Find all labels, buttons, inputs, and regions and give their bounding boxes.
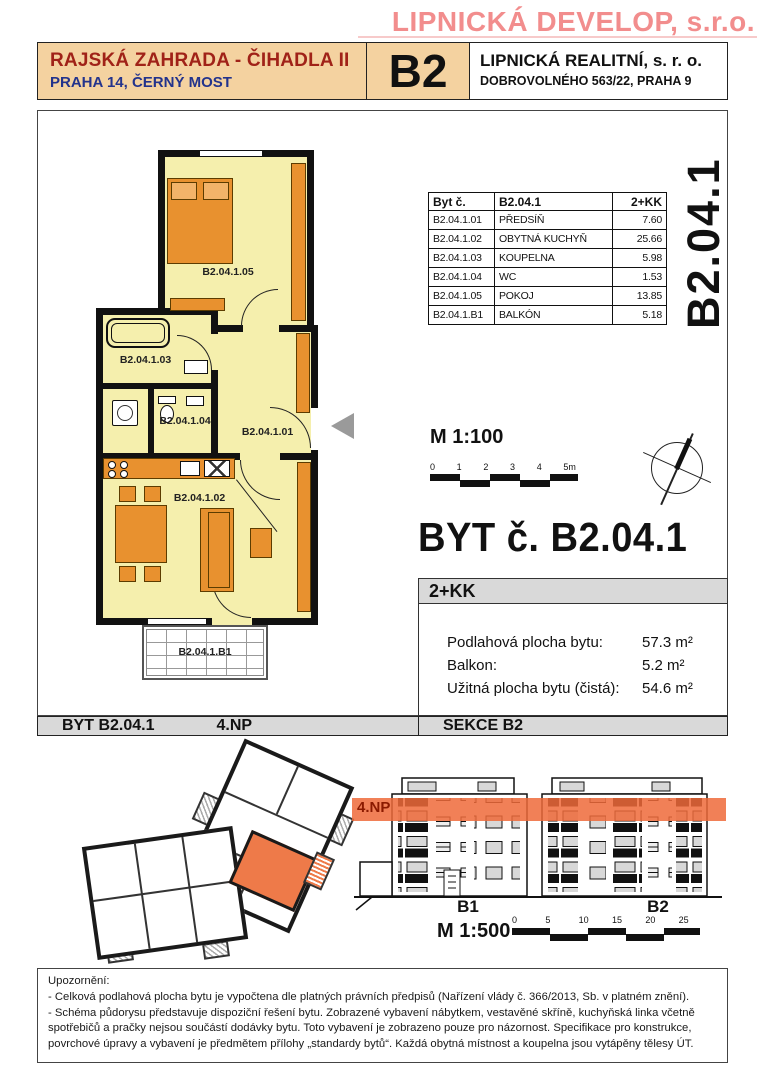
section-code: B2 (389, 44, 448, 98)
plan-window-bedroom (200, 150, 262, 157)
agency-name: LIPNICKÁ REALITNÍ, s. r. o. (480, 51, 727, 71)
plan-wall-unit (297, 462, 311, 612)
plan-chair (144, 566, 161, 582)
project-title: RAJSKÁ ZAHRADA - ČIHADLA II (50, 50, 366, 72)
room-name: KOUPELNA (495, 249, 613, 268)
plan-scale-bar: 012345m (430, 462, 590, 488)
info-value: 54.6 m² (642, 680, 693, 697)
room-area: 1.53 (613, 268, 667, 287)
plan-burner (108, 470, 116, 478)
room-label-bath: B2.04.1.03 (103, 354, 188, 366)
info-label: Podlahová plocha bytu: (447, 634, 642, 651)
building-label-b1: B1 (448, 897, 488, 917)
notice-line: - Schéma půdorysu představuje dispoziční… (48, 1006, 717, 1053)
info-value: 5.2 m² (642, 657, 685, 674)
footer-section-bar: SEKCE B2 (418, 716, 728, 736)
room-label-living: B2.04.1.02 (152, 492, 247, 504)
room-name: WC (495, 268, 613, 287)
room-code: B2.04.1.B1 (429, 306, 495, 325)
plan-kitchen-cabinet (180, 461, 200, 476)
tick: 5m (563, 462, 590, 472)
footer-unit-bar: BYT B2.04.1 4.NP (37, 716, 419, 736)
room-table-header: Byt č. B2.04.1 2+KK (429, 193, 667, 211)
building-label-b2: B2 (638, 897, 678, 917)
elevation-scale-label: M 1:500 (437, 920, 510, 943)
room-area: 7.60 (613, 211, 667, 230)
room-code: B2.04.1.05 (429, 287, 495, 306)
footer-floor: 4.NP (216, 717, 252, 735)
footer-unit: BYT B2.04.1 (62, 717, 154, 735)
info-value: 57.3 m² (642, 634, 693, 651)
col-id: B2.04.1 (495, 193, 613, 211)
table-row: B2.04.1.01 PŘEDSÍŇ 7.60 (429, 211, 667, 230)
room-area: 5.18 (613, 306, 667, 325)
plan-burner (108, 461, 116, 469)
plan-burner (120, 461, 128, 469)
floorplan-sheet: LIPNICKÁ DEVELOP, s.r.o. RAJSKÁ ZAHRADA … (0, 0, 763, 1080)
plan-scale-label: M 1:100 (430, 426, 503, 449)
plan-chair (119, 566, 136, 582)
room-area: 25.66 (613, 230, 667, 249)
section-header-box: B2 (366, 42, 470, 100)
plan-sofa-seat (208, 512, 230, 588)
tick: 10 (579, 915, 612, 925)
site-wing-lower (82, 826, 248, 960)
notice-title: Upozornění: (48, 974, 717, 990)
agency-header-box: LIPNICKÁ REALITNÍ, s. r. o. DOBROVOLNÉHO… (469, 42, 728, 100)
table-row: B2.04.1.04 WC 1.53 (429, 268, 667, 287)
brand-underline (358, 36, 757, 38)
agency-address: DOBROVOLNÉHO 563/22, PRAHA 9 (480, 74, 727, 88)
unit-side-label: B2.04.1 (678, 112, 726, 374)
plan-door-gap-bath (211, 334, 219, 370)
tick: 20 (645, 915, 678, 925)
room-code: B2.04.1.04 (429, 268, 495, 287)
info-row: Balkon: 5.2 m² (447, 657, 709, 674)
table-row: B2.04.1.03 KOUPELNA 5.98 (429, 249, 667, 268)
plan-tv-unit (250, 528, 272, 558)
plan-bathtub (106, 318, 170, 348)
apartment-title: BYT č. B2.04.1 (418, 514, 687, 561)
tick: 15 (612, 915, 645, 925)
plan-dining-table (115, 505, 167, 563)
plan-toilet-tank (158, 396, 176, 404)
building-elevation (352, 758, 732, 918)
tick: 0 (430, 462, 457, 472)
room-label-balcony: B2.04.1.B1 (155, 646, 255, 658)
plan-chair (119, 486, 136, 502)
room-label-bedroom: B2.04.1.05 (178, 266, 278, 278)
room-area: 13.85 (613, 287, 667, 306)
room-name: BALKÓN (495, 306, 613, 325)
plan-dresser (170, 298, 225, 311)
plan-wardrobe-hall (296, 333, 310, 413)
col-unit: Byt č. (429, 193, 495, 211)
plan-window-living (148, 618, 206, 625)
tick: 3 (510, 462, 537, 472)
plan-kitchen-sink (204, 460, 230, 477)
room-name: POKOJ (495, 287, 613, 306)
info-row: Užitná plocha bytu (čistá): 54.6 m² (447, 680, 709, 697)
notice-line: - Celková podlahová plocha bytu je vypoč… (48, 990, 717, 1006)
table-row: B2.04.1.05 POKOJ 13.85 (429, 287, 667, 306)
tick: 25 (679, 915, 712, 925)
plan-entry-arrow (331, 413, 354, 439)
footer-section: SEKCE B2 (443, 717, 523, 735)
room-code: B2.04.1.03 (429, 249, 495, 268)
info-box: 2+KK Podlahová plocha bytu: 57.3 m² Balk… (418, 578, 728, 716)
plan-wardrobe-bedroom (291, 163, 306, 321)
plan-wall-bath-wc (99, 383, 215, 389)
info-row: Podlahová plocha bytu: 57.3 m² (447, 634, 709, 651)
tick: 1 (457, 462, 484, 472)
room-code: B2.04.1.02 (429, 230, 495, 249)
plan-shelf (186, 396, 204, 406)
elevation-floor-label: 4.NP (357, 799, 390, 816)
tick: 2 (483, 462, 510, 472)
notice-box: Upozornění: - Celková podlahová plocha b… (37, 968, 728, 1063)
table-row: B2.04.1.02 OBYTNÁ KUCHYŇ 25.66 (429, 230, 667, 249)
room-name: PŘEDSÍŇ (495, 211, 613, 230)
room-table: Byt č. B2.04.1 2+KK B2.04.1.01 PŘEDSÍŇ 7… (428, 192, 667, 325)
plan-bed-pillow (203, 182, 229, 200)
room-area: 5.98 (613, 249, 667, 268)
table-row: B2.04.1.B1 BALKÓN 5.18 (429, 306, 667, 325)
tick: 4 (537, 462, 564, 472)
plan-bed-pillow (171, 182, 197, 200)
info-label: Užitná plocha bytu (čistá): (447, 680, 642, 697)
elevation-scale-bar: 0510152025 (512, 915, 712, 942)
site-plan (85, 750, 365, 962)
project-location: PRAHA 14, ČERNÝ MOST (50, 74, 366, 91)
plan-washing-machine (112, 400, 138, 426)
developer-logo: LIPNICKÁ DEVELOP, s.r.o. (392, 6, 755, 38)
room-name: OBYTNÁ KUCHYŇ (495, 230, 613, 249)
info-label: Balkon: (447, 657, 642, 674)
room-label-wc: B2.04.1.04 (150, 415, 220, 427)
plan-burner (120, 470, 128, 478)
col-layout: 2+KK (613, 193, 667, 211)
room-code: B2.04.1.01 (429, 211, 495, 230)
plan-door-gap-bedroom (243, 325, 279, 333)
project-header-box: RAJSKÁ ZAHRADA - ČIHADLA II PRAHA 14, ČE… (37, 42, 367, 100)
layout-badge: 2+KK (419, 579, 727, 604)
tick: 0 (512, 915, 545, 925)
room-label-hall: B2.04.1.01 (220, 426, 315, 438)
tick: 5 (545, 915, 578, 925)
